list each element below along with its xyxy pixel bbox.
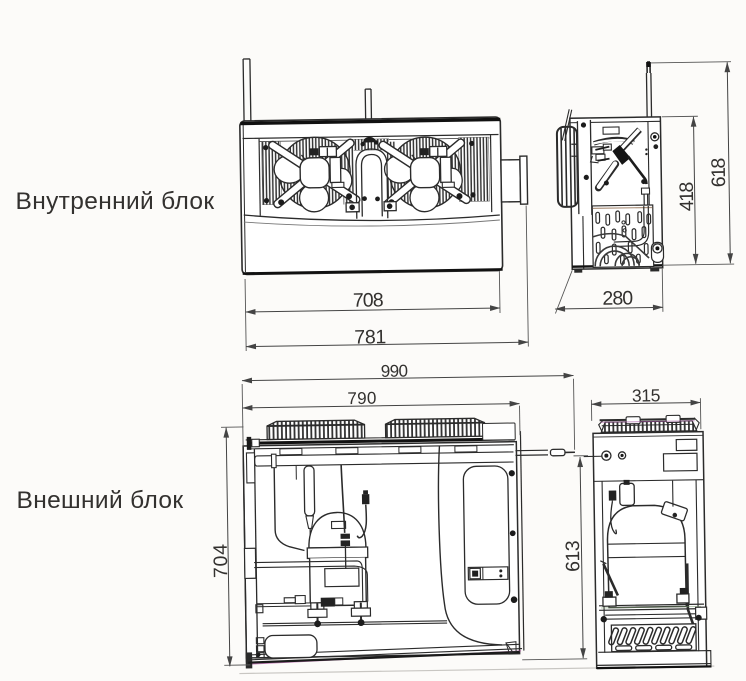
svg-text:618: 618 [708,158,730,188]
svg-text:704: 704 [210,544,233,578]
svg-text:990: 990 [381,361,409,380]
svg-text:790: 790 [347,389,376,408]
svg-text:280: 280 [602,287,633,309]
svg-text:Внутренний блок: Внутренний блок [16,188,215,215]
svg-text:781: 781 [354,326,386,348]
svg-text:613: 613 [562,540,584,572]
svg-text:708: 708 [353,289,384,311]
svg-text:Внешний блок: Внешний блок [17,487,184,514]
svg-text:418: 418 [676,182,698,212]
svg-text:315: 315 [632,385,661,405]
